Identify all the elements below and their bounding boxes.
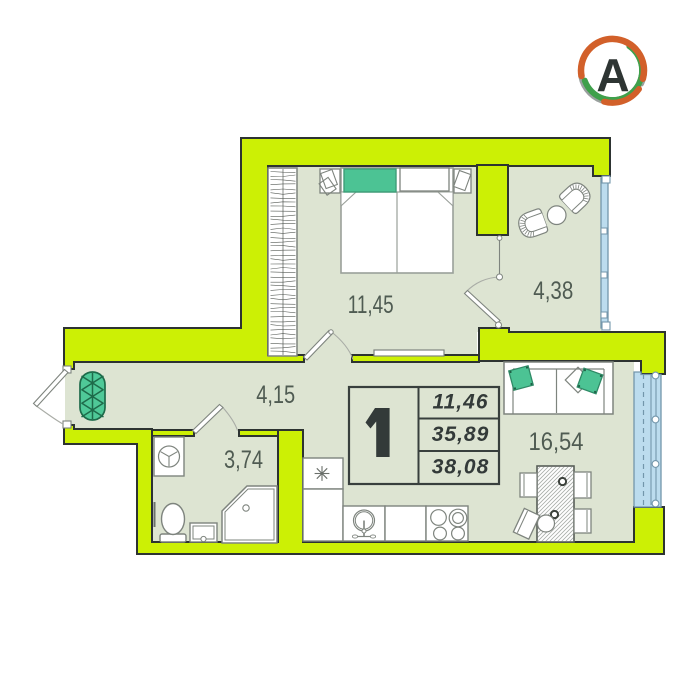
svg-text:4,15: 4,15 — [256, 381, 295, 409]
svg-text:4,38: 4,38 — [533, 277, 573, 305]
svg-text:38,08: 38,08 — [432, 456, 490, 479]
svg-text:35,89: 35,89 — [432, 423, 490, 446]
svg-text:11,46: 11,46 — [433, 391, 489, 414]
svg-text:3,74: 3,74 — [224, 446, 263, 474]
svg-text:16,54: 16,54 — [529, 428, 584, 456]
svg-text:A: A — [596, 49, 629, 101]
svg-text:11,45: 11,45 — [348, 291, 394, 319]
